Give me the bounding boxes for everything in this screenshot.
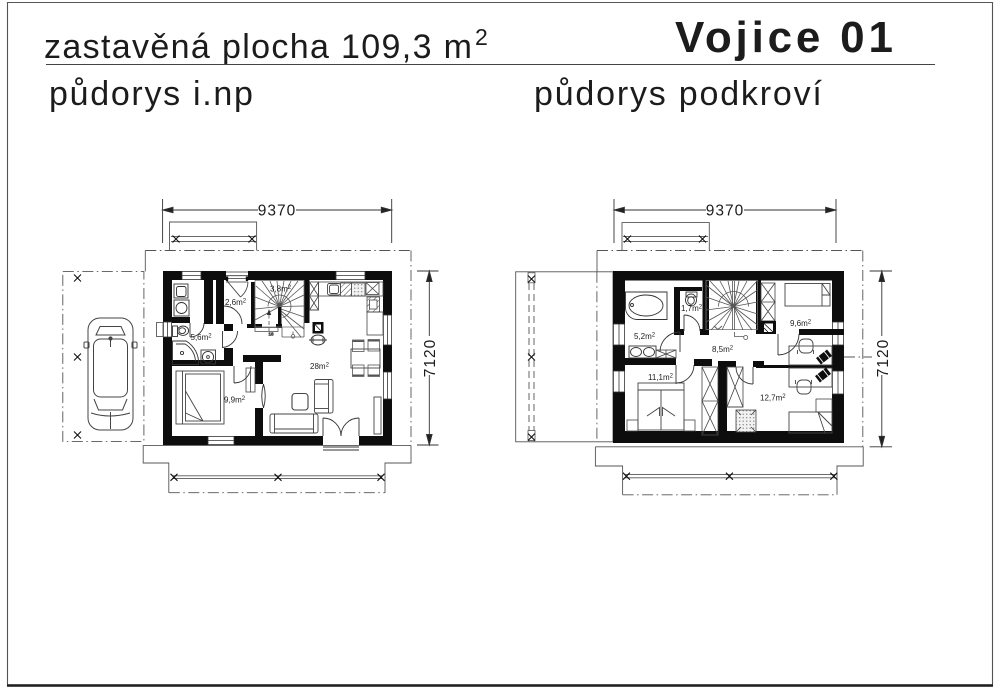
svg-text:zastavěná plocha 109,3 m: zastavěná plocha 109,3 m [44, 28, 473, 66]
svg-text:9370: 9370 [706, 203, 744, 220]
svg-text:Vojice 01: Vojice 01 [675, 13, 897, 62]
svg-text:7120: 7120 [422, 339, 439, 377]
svg-text:9370: 9370 [258, 203, 296, 220]
svg-text:půdorys i.np: půdorys i.np [49, 75, 255, 113]
svg-text:16: 16 [268, 332, 274, 337]
svg-text:půdorys podkroví: půdorys podkroví [534, 75, 824, 113]
svg-text:7120: 7120 [875, 339, 892, 377]
svg-text:2: 2 [475, 24, 488, 50]
